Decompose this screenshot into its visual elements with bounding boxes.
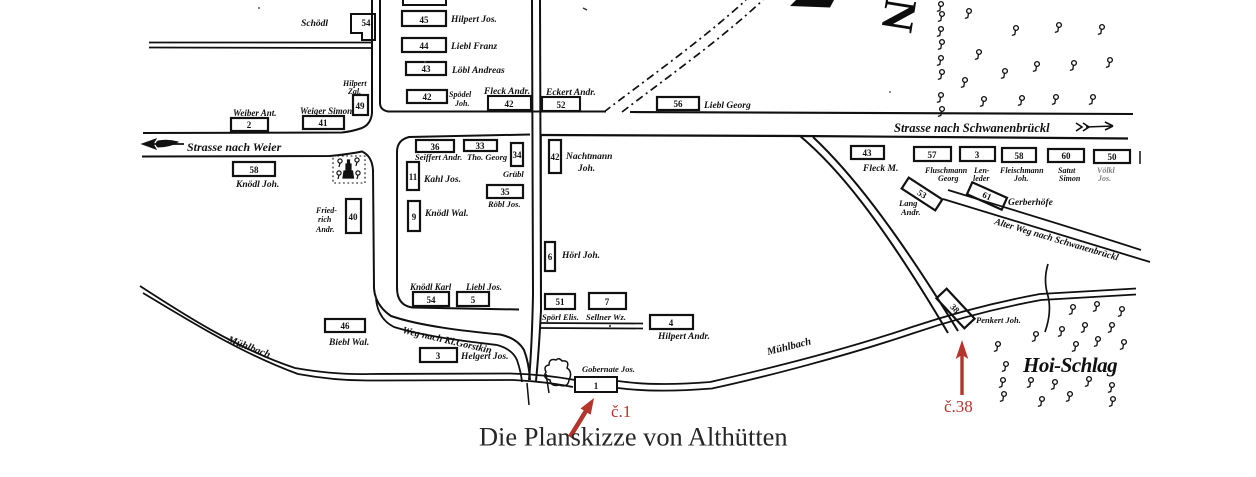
svg-text:Sellner Wz.: Sellner Wz. (586, 312, 626, 322)
svg-text:Nachtmann: Nachtmann (565, 152, 612, 162)
svg-text:6: 6 (548, 252, 553, 262)
svg-text:45: 45 (420, 15, 430, 25)
svg-text:Gobernate Jos.: Gobernate Jos. (582, 364, 635, 374)
svg-text:Joh.: Joh. (1013, 174, 1028, 183)
svg-text:Grübl: Grübl (503, 169, 524, 179)
svg-text:Joh.: Joh. (454, 99, 469, 108)
svg-text:N: N (871, 0, 927, 36)
svg-text:49: 49 (356, 101, 366, 111)
svg-text:54: 54 (427, 295, 437, 305)
svg-text:41: 41 (319, 118, 329, 128)
svg-text:Spödel: Spödel (449, 90, 472, 99)
svg-text:Hilpert Jos.: Hilpert Jos. (450, 15, 497, 25)
svg-text:40: 40 (349, 212, 359, 222)
svg-text:Mühlbach: Mühlbach (765, 336, 812, 358)
svg-text:42: 42 (551, 152, 561, 162)
svg-text:9: 9 (412, 212, 417, 222)
svg-text:Hilpert Andr.: Hilpert Andr. (657, 332, 710, 342)
svg-text:5: 5 (471, 295, 476, 305)
svg-text:Fleck Andr.: Fleck Andr. (483, 87, 530, 97)
svg-text:56: 56 (674, 99, 684, 109)
svg-text:Kahl Jos.: Kahl Jos. (423, 175, 461, 185)
svg-text:36: 36 (431, 142, 441, 152)
svg-text:Zal.: Zal. (347, 87, 361, 96)
svg-text:52: 52 (557, 100, 567, 110)
svg-text:3: 3 (436, 351, 441, 361)
svg-text:42: 42 (505, 99, 515, 109)
svg-text:Knödl Wal.: Knödl Wal. (424, 209, 468, 219)
svg-text:Joh.: Joh. (577, 164, 595, 174)
svg-text:42: 42 (423, 92, 433, 102)
svg-text:rich: rich (318, 215, 332, 224)
svg-text:Liebl Georg: Liebl Georg (703, 101, 751, 111)
svg-text:Die Planskizze von Althütten: Die Planskizze von Althütten (479, 422, 788, 452)
svg-text:Fleck M.: Fleck M. (862, 164, 898, 174)
svg-text:50: 50 (1108, 152, 1118, 162)
svg-text:Andr.: Andr. (900, 207, 921, 217)
svg-text:Liebl Franz: Liebl Franz (450, 42, 497, 52)
svg-text:58: 58 (250, 165, 260, 175)
svg-text:Fried-: Fried- (315, 206, 337, 215)
svg-text:Mühlbach: Mühlbach (225, 334, 272, 361)
svg-text:Strasse nach Schwanenbrückl: Strasse nach Schwanenbrückl (894, 121, 1050, 135)
svg-text:Schödl: Schödl (301, 19, 328, 29)
svg-text:34: 34 (513, 150, 523, 160)
svg-text:Weiber Ant.: Weiber Ant. (233, 108, 277, 118)
svg-text:Penkert Joh.: Penkert Joh. (976, 315, 1021, 325)
svg-text:43: 43 (863, 148, 873, 158)
svg-text:Jos.: Jos. (1097, 174, 1111, 183)
svg-text:44: 44 (420, 41, 430, 51)
svg-text:Eckert Andr.: Eckert Andr. (545, 88, 596, 98)
svg-text:Gerberhöfe: Gerberhöfe (1008, 198, 1054, 208)
svg-text:33: 33 (476, 141, 486, 151)
svg-text:Knödl Karl: Knödl Karl (409, 282, 452, 292)
svg-text:Weg nach Kl.Gorstkin: Weg nach Kl.Gorstkin (401, 325, 493, 356)
svg-text:Georg: Georg (938, 174, 958, 183)
svg-text:51: 51 (556, 297, 566, 307)
svg-text:Löbl Andreas: Löbl Andreas (451, 66, 505, 76)
svg-text:1: 1 (594, 381, 599, 391)
svg-text:11: 11 (409, 172, 418, 182)
svg-text:Biebl Wal.: Biebl Wal. (328, 338, 369, 348)
svg-text:č.1: č.1 (611, 402, 631, 421)
svg-text:Spörl Elis.: Spörl Elis. (542, 312, 579, 322)
svg-text:46: 46 (341, 321, 351, 331)
svg-text:Hoi-Schlag: Hoi-Schlag (1022, 353, 1117, 377)
svg-text:60: 60 (1062, 151, 1072, 161)
svg-text:3: 3 (975, 150, 980, 160)
svg-text:4: 4 (669, 318, 674, 328)
svg-text:Andr.: Andr. (315, 225, 334, 234)
svg-text:58: 58 (1015, 151, 1025, 161)
svg-text:č.38: č.38 (944, 397, 973, 416)
svg-text:Knödl Joh.: Knödl Joh. (235, 180, 279, 190)
svg-text:Tho. Georg: Tho. Georg (467, 152, 508, 162)
svg-text:Weiger Simon: Weiger Simon (300, 106, 352, 116)
svg-text:2: 2 (247, 120, 252, 130)
svg-text:43: 43 (422, 64, 432, 74)
svg-text:54: 54 (362, 18, 372, 28)
svg-text:57: 57 (928, 150, 938, 160)
svg-text:leder: leder (973, 174, 990, 183)
svg-text:Seiffert Andr.: Seiffert Andr. (415, 152, 462, 162)
svg-text:Simon: Simon (1059, 174, 1081, 183)
svg-text:7: 7 (605, 297, 610, 307)
svg-text:Hörl Joh.: Hörl Joh. (561, 251, 600, 261)
svg-text:Röbl Jos.: Röbl Jos. (487, 199, 521, 209)
svg-text:35: 35 (501, 187, 511, 197)
svg-text:Strasse nach Weier: Strasse nach Weier (187, 140, 282, 154)
svg-text:Liebl Jos.: Liebl Jos. (465, 282, 502, 292)
